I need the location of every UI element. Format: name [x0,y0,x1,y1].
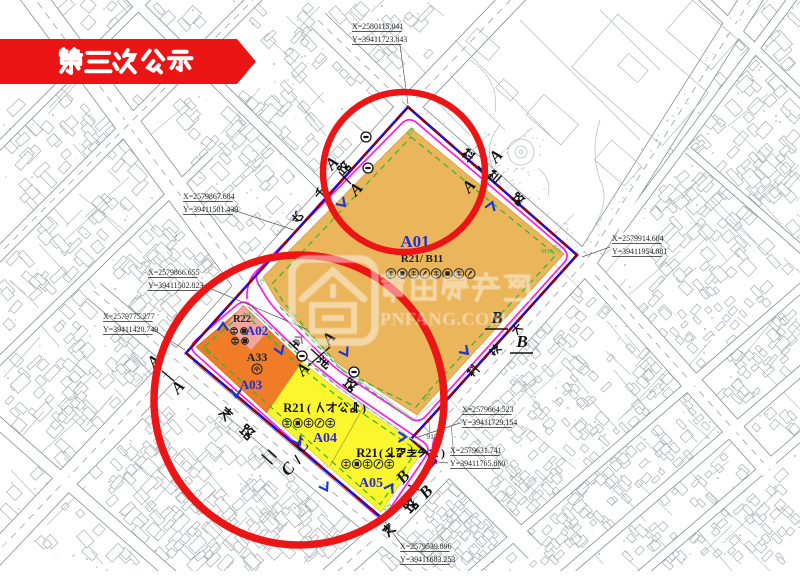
svg-text:A05: A05 [359,476,383,491]
svg-text:Y=39411765.860: Y=39411765.860 [450,459,505,468]
svg-text:A33: A33 [247,350,268,364]
svg-text:X=2579866.655: X=2579866.655 [148,268,200,277]
svg-text:X=2579867.684: X=2579867.684 [183,192,235,201]
svg-text:X=2580115.041: X=2580115.041 [352,22,403,31]
svg-text:Y=39411723.843: Y=39411723.843 [352,35,407,44]
svg-text:M15: M15 [541,248,553,255]
svg-text:B: B [515,332,527,351]
svg-text:(: ( [307,401,311,415]
svg-text:X=2579539.896: X=2579539.896 [400,542,452,551]
svg-text:(: ( [379,446,383,460]
svg-text:): ) [441,446,445,460]
svg-text:X=2579664.523: X=2579664.523 [462,405,514,414]
svg-text:R21: R21 [283,401,305,415]
svg-text:Y=39411729.154: Y=39411729.154 [462,418,517,427]
svg-text:Y=39411420.749: Y=39411420.749 [103,325,158,334]
svg-text:R21: R21 [356,446,378,460]
svg-text:X=2579914.604: X=2579914.604 [612,234,664,243]
svg-text:Y=39411502.823: Y=39411502.823 [148,281,203,290]
svg-text:Y=39411683.253: Y=39411683.253 [400,555,455,564]
svg-text:Y=39411954.081: Y=39411954.081 [612,247,667,256]
svg-text:Y=39411501.439: Y=39411501.439 [183,205,238,214]
svg-text:X=2579631.741: X=2579631.741 [450,446,502,455]
svg-text:A04: A04 [313,431,337,446]
svg-text:A03: A03 [240,377,263,392]
svg-text:X=2579775.277: X=2579775.277 [103,312,155,321]
svg-text:A02: A02 [246,323,268,338]
svg-text:): ) [362,401,366,415]
svg-text:PNFANG.COM: PNFANG.COM [380,309,507,329]
